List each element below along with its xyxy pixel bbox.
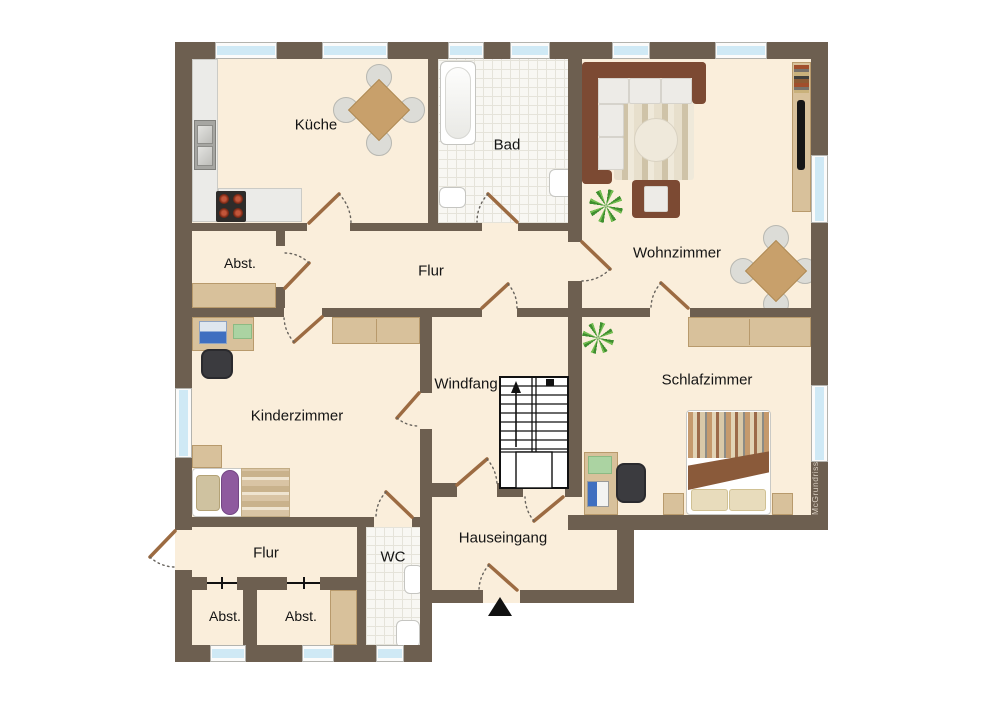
storage-openings	[207, 577, 320, 589]
door-windfang-hauseingang	[457, 459, 497, 485]
room-label-schlafzimmer: Schlafzimmer	[662, 372, 753, 389]
door-bad	[477, 194, 517, 222]
door-side-exit	[150, 531, 175, 567]
room-label-hauseingang: Hauseingang	[459, 530, 547, 547]
floor-plan-symbols	[0, 0, 1000, 706]
floor-plan: Küche Bad Wohnzimmer Abst. Flur Kinderzi…	[0, 0, 1000, 706]
door-abstellraum	[285, 253, 309, 288]
room-label-wc: WC	[381, 549, 406, 566]
door-understairs	[525, 497, 563, 521]
staircase	[500, 377, 568, 488]
door-kinderzimmer-windfang	[397, 393, 419, 426]
room-label-abst-unten-rechts: Abst.	[285, 608, 317, 624]
room-label-bad: Bad	[494, 137, 521, 154]
room-label-abst-unten-links: Abst.	[209, 608, 241, 624]
door-entrance	[479, 565, 517, 590]
room-label-flur: Flur	[418, 263, 444, 280]
door-schlafzimmer	[651, 283, 688, 308]
door-wohnzimmer	[582, 242, 610, 281]
door-windfang	[482, 284, 517, 308]
room-label-abst-oben: Abst.	[224, 255, 256, 271]
room-label-kinderzimmer: Kinderzimmer	[251, 408, 344, 425]
room-label-wohnzimmer: Wohnzimmer	[633, 245, 721, 262]
door-wc	[376, 492, 412, 517]
stairs-end-marker	[546, 379, 554, 386]
door-kinderzimmer	[284, 317, 322, 342]
door-kueche	[309, 194, 351, 223]
room-label-kueche: Küche	[295, 117, 338, 134]
room-label-windfang: Windfang	[434, 376, 497, 393]
room-label-flur-unten: Flur	[253, 545, 279, 562]
entrance-arrow-icon	[488, 597, 512, 616]
watermark: McGrundriss	[810, 452, 824, 524]
doors	[150, 194, 688, 590]
